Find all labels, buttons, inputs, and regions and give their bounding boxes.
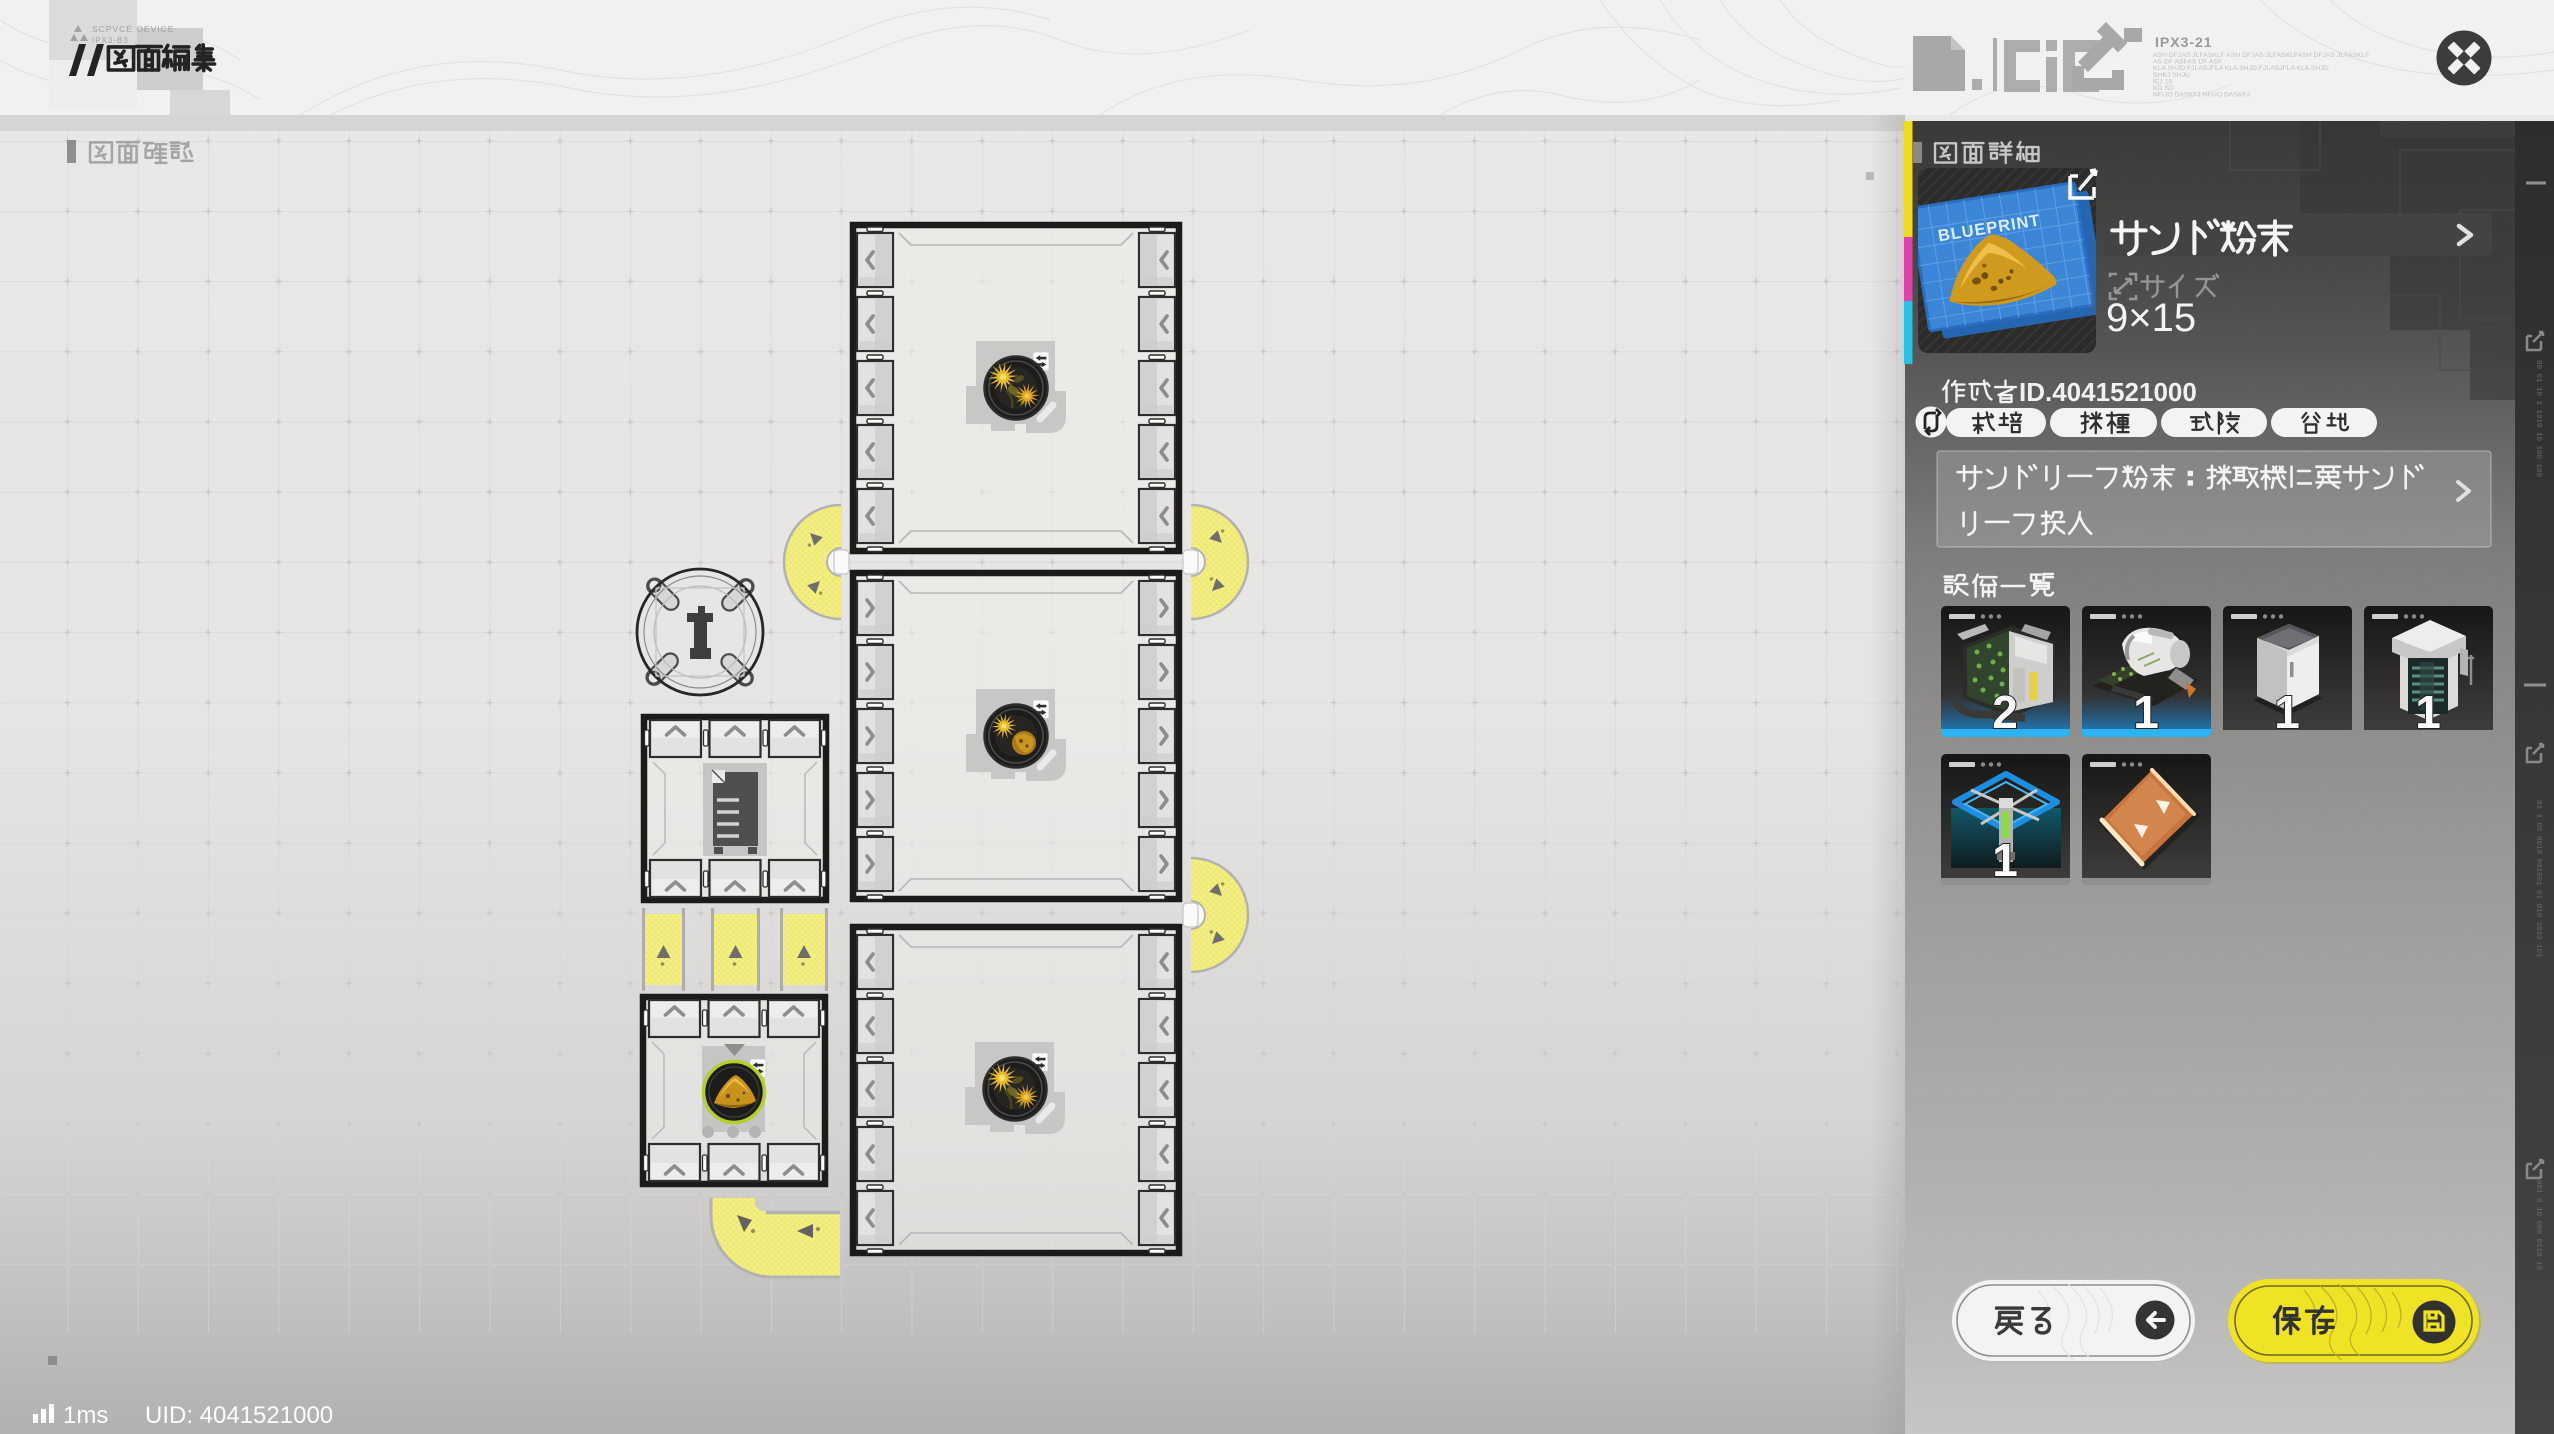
svg-text:1ms: 1ms [63,1402,108,1429]
svg-text:NFIJO DASKFJ NFIJO DASKFJ: NFIJO DASKFJ NFIJO DASKFJ [2153,92,2250,99]
svg-text:UID: 4041521000: UID: 4041521000 [145,1402,333,1429]
svg-text:2: 2 [1992,686,2018,738]
svg-text:1: 1 [2133,686,2159,738]
svg-text:1: 1 [1992,834,2018,886]
svg-text:1: 1 [2274,686,2300,738]
svg-text:IPX3-21: IPX3-21 [2155,34,2213,50]
svg-text:01 1 05 0010 001001 01 010 101: 01 1 05 0010 001001 01 010 1010 101 [2534,800,2542,958]
svg-text:00 01 10 1 1010 10 100 100: 00 01 10 1 1010 10 100 100 [2534,360,2542,478]
svg-text:IPX3-B3: IPX3-B3 [92,36,129,45]
svg-text:ID.4041521000: ID.4041521000 [2019,377,2197,407]
svg-text:001 0 10 000 0110 10: 001 0 10 000 0110 10 [2534,1180,2542,1271]
svg-text:SCPVCE OEVICE: SCPVCE OEVICE [92,24,174,34]
svg-text:9×15: 9×15 [2106,296,2196,340]
svg-text:1: 1 [2415,686,2441,738]
